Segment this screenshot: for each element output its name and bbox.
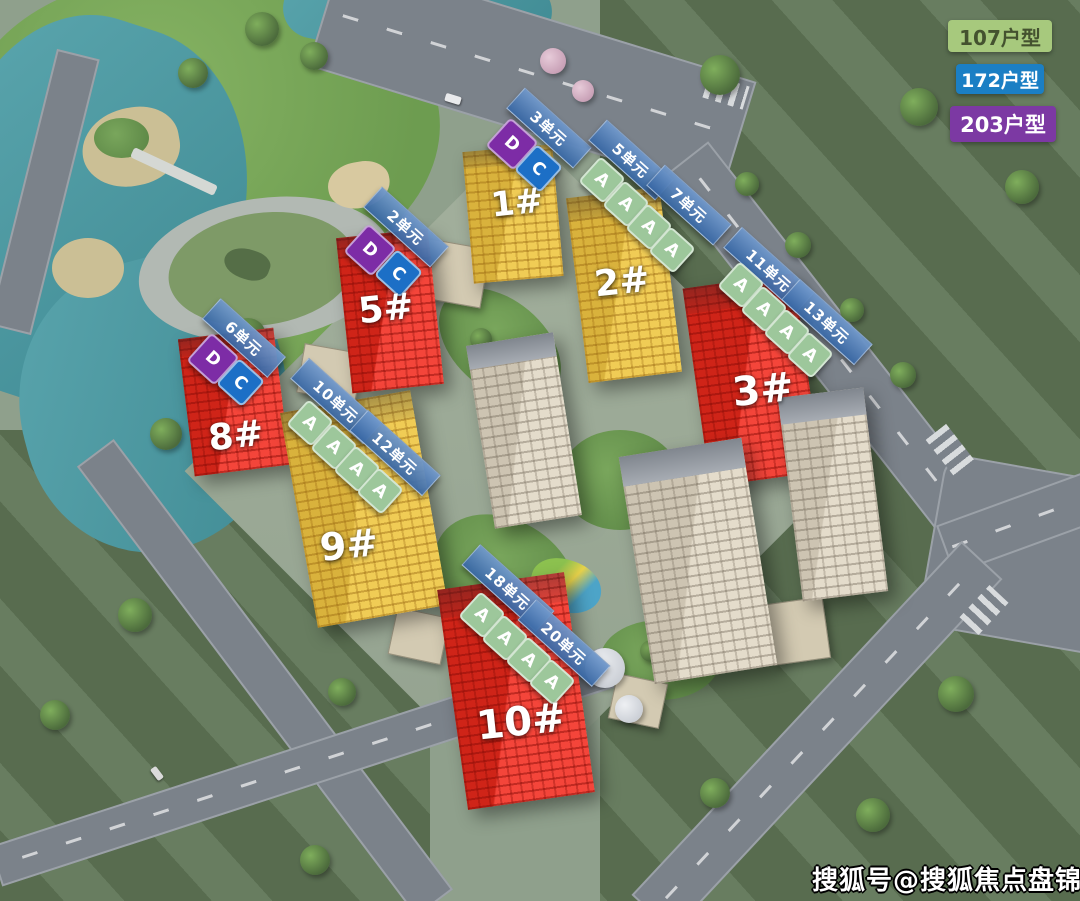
tree-cluster-6 xyxy=(150,418,182,450)
blossom-tree-1 xyxy=(540,48,566,74)
blossom-tree-4 xyxy=(615,695,643,723)
tree-cluster-18 xyxy=(40,700,70,730)
building-10-number: 10# xyxy=(474,694,568,749)
tree-cluster-16 xyxy=(700,778,730,808)
tree-cluster-19 xyxy=(300,845,330,875)
building-9-number: 9# xyxy=(318,520,381,570)
tree-cluster-11 xyxy=(785,232,811,258)
tree-cluster-9 xyxy=(1005,170,1039,204)
tree-cluster-8 xyxy=(900,88,938,126)
island-small xyxy=(52,238,124,298)
tree-cluster-2 xyxy=(300,42,328,70)
building-3-number: 3# xyxy=(730,364,796,416)
building-2-number: 2# xyxy=(592,259,651,306)
tree-cluster-15 xyxy=(856,798,890,832)
tree-cluster-1 xyxy=(245,12,279,46)
building-8-number: 8# xyxy=(206,413,265,460)
blossom-tree-2 xyxy=(572,80,594,102)
tree-cluster-14 xyxy=(938,676,974,712)
legend-item-107: 107户型 xyxy=(948,20,1052,52)
tree-cluster-17 xyxy=(118,598,152,632)
building-5-number: 5# xyxy=(356,286,415,333)
tree-cluster-3 xyxy=(178,58,208,88)
watermark: 搜狐号@搜狐焦点盘锦站 xyxy=(812,860,1080,897)
aerial-site-plan: 3单元 D C 1# 5单元 7单元 A A A A 2# 11单元 13单元 … xyxy=(0,0,1080,901)
legend-item-203: 203户型 xyxy=(950,106,1056,142)
building-1-number: 1# xyxy=(489,180,545,225)
legend-item-172: 172户型 xyxy=(956,64,1044,94)
tree-cluster-10 xyxy=(735,172,759,196)
tree-cluster-20 xyxy=(328,678,356,706)
tree-cluster-7 xyxy=(700,55,740,95)
tree-cluster-13 xyxy=(890,362,916,388)
